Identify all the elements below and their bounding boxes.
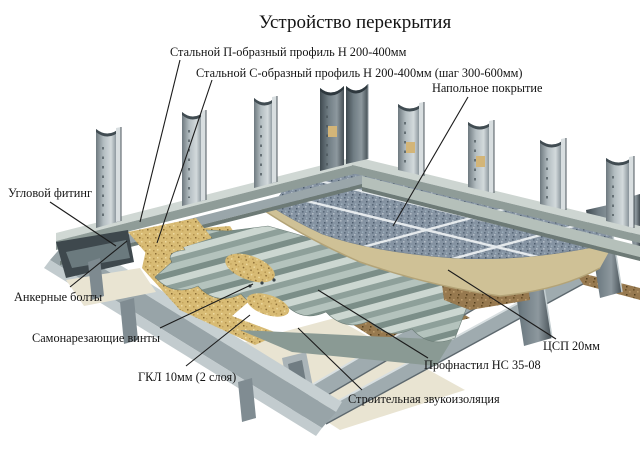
label-sound-insulation: Строительная звукоизоляция xyxy=(348,392,500,406)
label-floor-covering: Напольное покрытие xyxy=(432,81,543,95)
label-self-tapping-screws: Самонарезающие винты xyxy=(32,331,160,345)
c-profile-stud xyxy=(540,138,566,210)
c-profile-stud xyxy=(346,84,368,164)
c-profile-stud xyxy=(468,120,494,193)
diagram-canvas: Устройство перекрытия Стальной П-образны… xyxy=(0,0,640,453)
label-anchor-bolts: Анкерные болты xyxy=(14,290,102,304)
c-profile-stud xyxy=(254,96,277,188)
c-profile-stud xyxy=(96,127,121,228)
label-corner-fitting: Угловой фитинг xyxy=(8,186,92,200)
label-c-profile: Стальной С-образный профиль Н 200-400мм … xyxy=(196,66,523,80)
c-profile-stud xyxy=(398,102,424,176)
page-title: Устройство перекрытия xyxy=(259,12,452,33)
label-profiled-sheet: Профнастил НС 35-08 xyxy=(424,358,541,372)
c-profile-stud xyxy=(320,86,344,171)
label-csp: ЦСП 20мм xyxy=(543,339,600,353)
label-gkl: ГКЛ 10мм (2 слоя) xyxy=(138,370,236,384)
c-profile-stud xyxy=(606,156,634,228)
diagram-page: Устройство перекрытия Стальной П-образны… xyxy=(0,0,640,453)
label-p-profile: Стальной П-образный профиль Н 200-400мм xyxy=(170,45,407,59)
